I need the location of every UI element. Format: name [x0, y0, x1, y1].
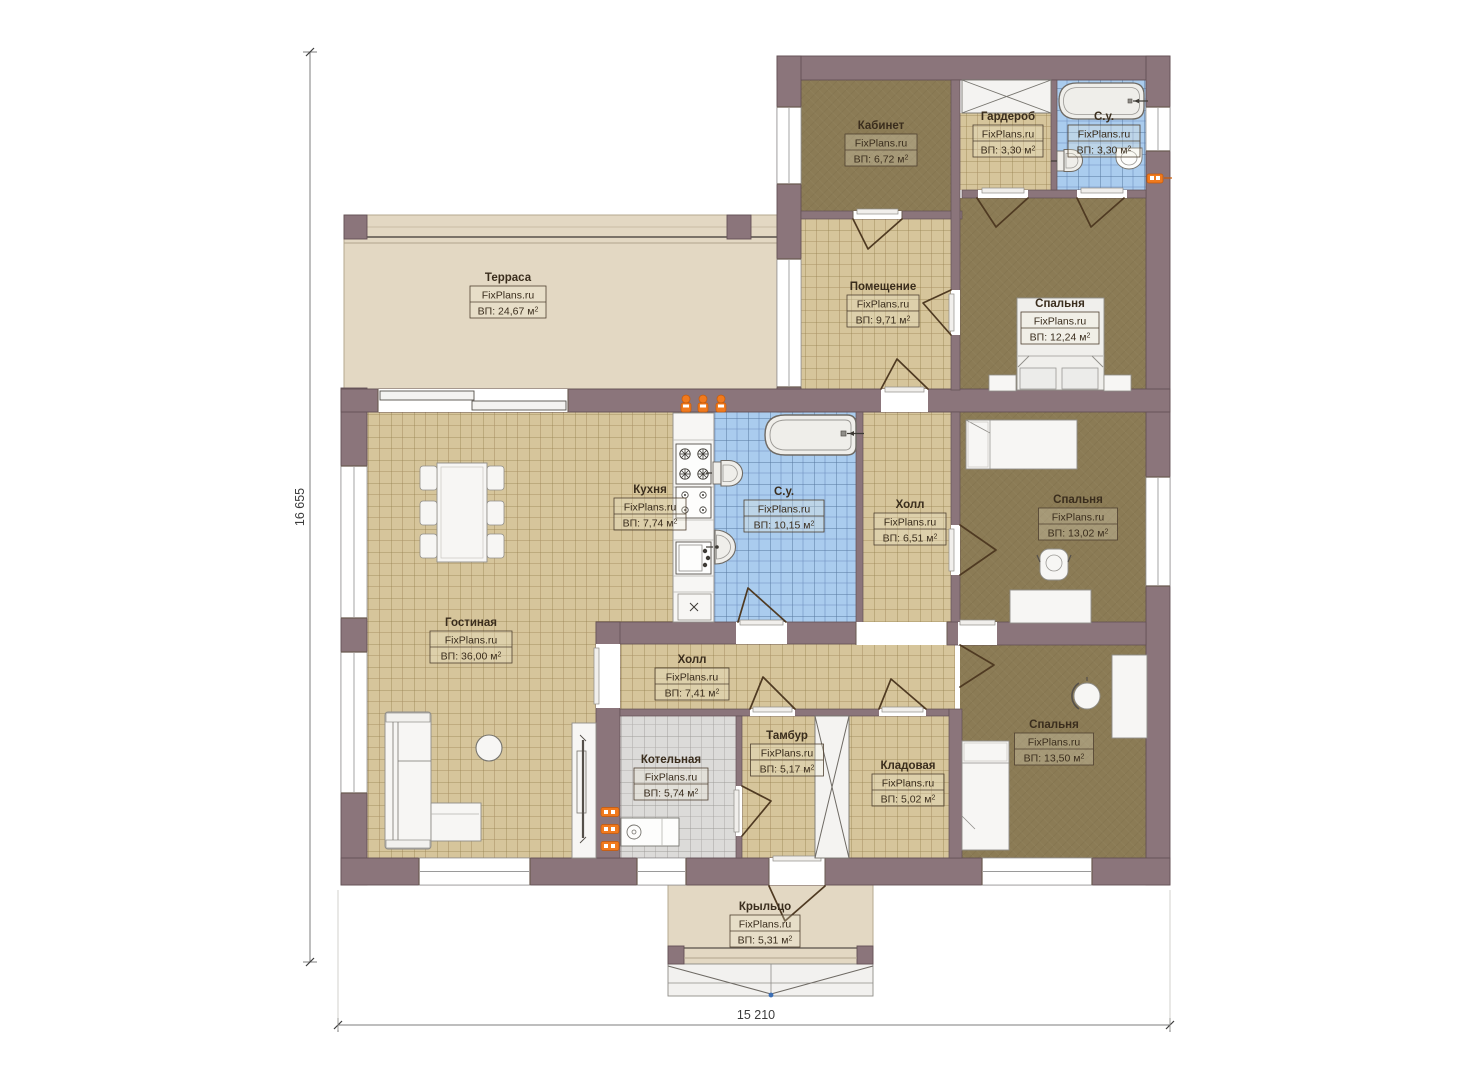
- svg-text:Кабинет: Кабинет: [858, 120, 905, 132]
- svg-text:ВП: 3,30 м2: ВП: 3,30 м2: [1077, 145, 1132, 157]
- svg-text:FixPlans.ru: FixPlans.ru: [882, 778, 935, 790]
- svg-text:ВП: 9,71 м2: ВП: 9,71 м2: [856, 315, 911, 327]
- svg-text:Кладовая: Кладовая: [880, 760, 935, 772]
- svg-text:Спальня: Спальня: [1029, 719, 1079, 731]
- svg-text:FixPlans.ru: FixPlans.ru: [855, 138, 908, 150]
- svg-text:16 655: 16 655: [293, 488, 307, 526]
- svg-text:ВП: 5,31 м2: ВП: 5,31 м2: [738, 935, 793, 947]
- svg-text:FixPlans.ru: FixPlans.ru: [666, 672, 719, 684]
- svg-text:ВП: 5,02 м2: ВП: 5,02 м2: [881, 794, 936, 806]
- svg-text:FixPlans.ru: FixPlans.ru: [758, 504, 811, 516]
- svg-text:ВП: 7,41 м2: ВП: 7,41 м2: [665, 688, 720, 700]
- svg-text:Спальня: Спальня: [1053, 494, 1103, 506]
- svg-text:Спальня: Спальня: [1035, 298, 1085, 310]
- svg-text:FixPlans.ru: FixPlans.ru: [739, 919, 792, 931]
- svg-text:ВП: 3,30 м2: ВП: 3,30 м2: [981, 145, 1036, 157]
- svg-text:FixPlans.ru: FixPlans.ru: [884, 517, 937, 529]
- svg-text:ВП: 36,00 м2: ВП: 36,00 м2: [441, 651, 502, 663]
- svg-text:FixPlans.ru: FixPlans.ru: [1078, 129, 1131, 141]
- svg-text:ВП: 5,74 м2: ВП: 5,74 м2: [644, 788, 699, 800]
- svg-text:FixPlans.ru: FixPlans.ru: [982, 129, 1035, 141]
- svg-text:Холл: Холл: [678, 654, 707, 666]
- svg-text:Помещение: Помещение: [850, 281, 917, 293]
- svg-text:FixPlans.ru: FixPlans.ru: [857, 299, 910, 311]
- svg-text:ВП: 13,02 м2: ВП: 13,02 м2: [1048, 528, 1109, 540]
- svg-text:15 210: 15 210: [737, 1008, 775, 1022]
- svg-text:FixPlans.ru: FixPlans.ru: [1028, 737, 1081, 749]
- svg-text:ВП: 6,51 м2: ВП: 6,51 м2: [883, 533, 938, 545]
- svg-text:ВП: 5,17 м2: ВП: 5,17 м2: [760, 764, 815, 776]
- svg-text:С.у.: С.у.: [1094, 111, 1114, 123]
- svg-text:FixPlans.ru: FixPlans.ru: [1052, 512, 1105, 524]
- svg-text:FixPlans.ru: FixPlans.ru: [482, 290, 535, 302]
- svg-text:ВП: 13,50 м2: ВП: 13,50 м2: [1024, 753, 1085, 765]
- svg-text:ВП: 6,72 м2: ВП: 6,72 м2: [854, 154, 909, 166]
- svg-text:Кухня: Кухня: [633, 484, 667, 496]
- svg-text:Крыльцо: Крыльцо: [739, 901, 791, 913]
- svg-text:ВП: 7,74 м2: ВП: 7,74 м2: [623, 518, 678, 530]
- svg-text:FixPlans.ru: FixPlans.ru: [1034, 316, 1087, 328]
- svg-text:С.у.: С.у.: [774, 486, 794, 498]
- svg-text:Гостиная: Гостиная: [445, 617, 497, 629]
- svg-text:FixPlans.ru: FixPlans.ru: [445, 635, 498, 647]
- svg-text:Терраса: Терраса: [485, 272, 532, 284]
- svg-text:ВП: 24,67 м2: ВП: 24,67 м2: [478, 306, 539, 318]
- svg-text:ВП: 12,24 м2: ВП: 12,24 м2: [1030, 332, 1091, 344]
- svg-text:Гардероб: Гардероб: [981, 111, 1035, 123]
- svg-text:Котельная: Котельная: [641, 754, 701, 766]
- svg-text:FixPlans.ru: FixPlans.ru: [624, 502, 677, 514]
- svg-text:FixPlans.ru: FixPlans.ru: [645, 772, 698, 784]
- svg-text:Холл: Холл: [896, 499, 925, 511]
- svg-text:ВП: 10,15 м2: ВП: 10,15 м2: [754, 520, 815, 532]
- svg-text:FixPlans.ru: FixPlans.ru: [761, 748, 814, 760]
- svg-text:Тамбур: Тамбур: [766, 730, 808, 742]
